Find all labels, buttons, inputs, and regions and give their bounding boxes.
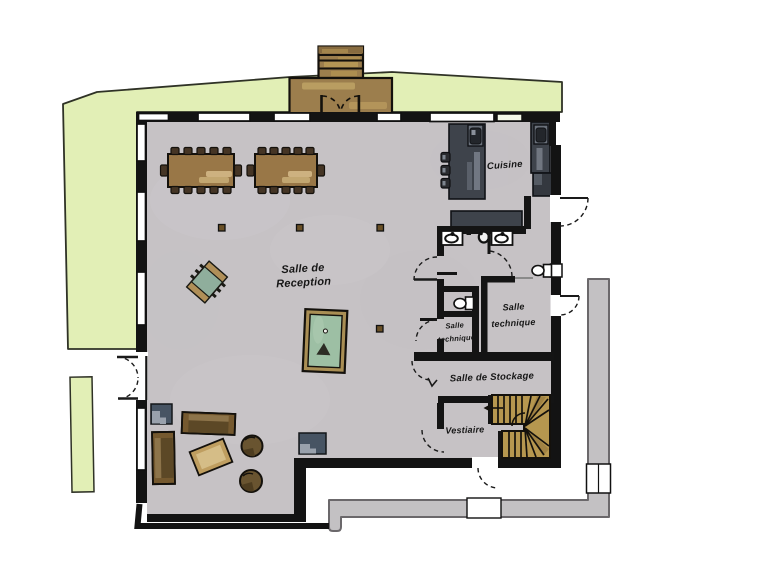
svg-text:Salle de: Salle de	[281, 262, 325, 276]
svg-text:Salle: Salle	[502, 301, 525, 312]
svg-text:Salle: Salle	[445, 320, 464, 330]
svg-text:Vestiaire: Vestiaire	[445, 424, 484, 435]
